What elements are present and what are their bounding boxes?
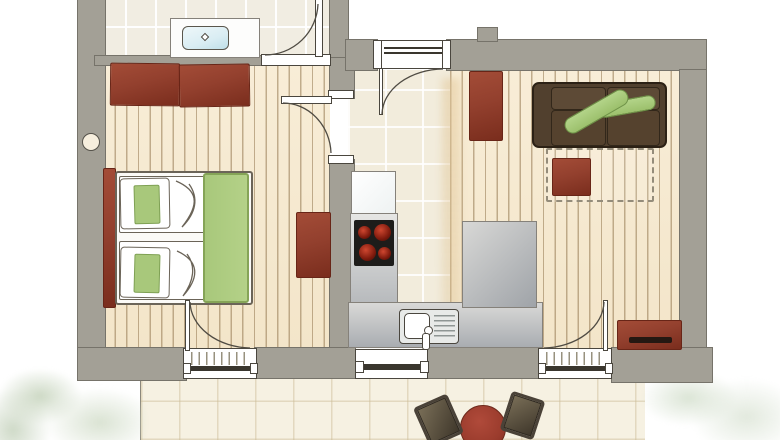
kitchen-window — [355, 349, 428, 379]
bathroom-door-leaf — [315, 0, 323, 57]
wall-column-dot — [82, 133, 100, 151]
bedroom-terrace-door-leaf — [185, 300, 190, 351]
burner-large-1 — [374, 224, 391, 241]
cooktop — [354, 220, 394, 266]
living-terrace-door-leaf — [603, 300, 608, 351]
kitchen-tall-appliance — [351, 171, 396, 214]
living-terrace-door — [538, 348, 612, 379]
sideboard-slot — [629, 337, 672, 343]
bathroom-vanity — [170, 18, 260, 58]
sink-drainboard — [434, 315, 455, 338]
wall-bottom-left — [78, 348, 186, 380]
sink-faucet-stem — [422, 333, 430, 350]
wall-top-right-of-entrance — [447, 40, 706, 70]
burner-small-2 — [378, 247, 391, 260]
bedroom-dresser — [296, 212, 331, 278]
chimney-projection — [478, 28, 497, 41]
coffee-table — [552, 158, 591, 196]
entrance-door-leaf — [379, 68, 383, 115]
bedroom-terrace-door — [183, 348, 257, 379]
burner-large-2 — [359, 244, 376, 261]
garden-watercolor-left — [0, 370, 145, 440]
wardrobe-right — [179, 64, 251, 108]
kitchen-sink-unit — [399, 309, 459, 344]
burner-small-1 — [358, 226, 371, 239]
living-tall-cabinet — [469, 71, 503, 141]
sideboard — [617, 320, 682, 350]
wardrobe-left — [110, 63, 180, 107]
wall-bottom-middle-left — [255, 348, 355, 378]
bed-duvet — [203, 173, 249, 303]
entrance-door — [373, 40, 451, 69]
kitchen-peninsula — [462, 221, 537, 308]
terrace-floor — [140, 378, 645, 440]
floor-plan — [0, 0, 780, 440]
wall-bottom-right — [612, 348, 712, 382]
wall-east — [680, 70, 706, 352]
wall-bottom-middle-right — [428, 348, 538, 378]
pillow-top-inner — [133, 185, 160, 225]
bedroom-door-leaf — [281, 96, 332, 104]
pillow-bottom-inner — [133, 254, 160, 294]
wall-west — [78, 0, 105, 350]
bedroom-door-post-bottom — [328, 155, 354, 164]
